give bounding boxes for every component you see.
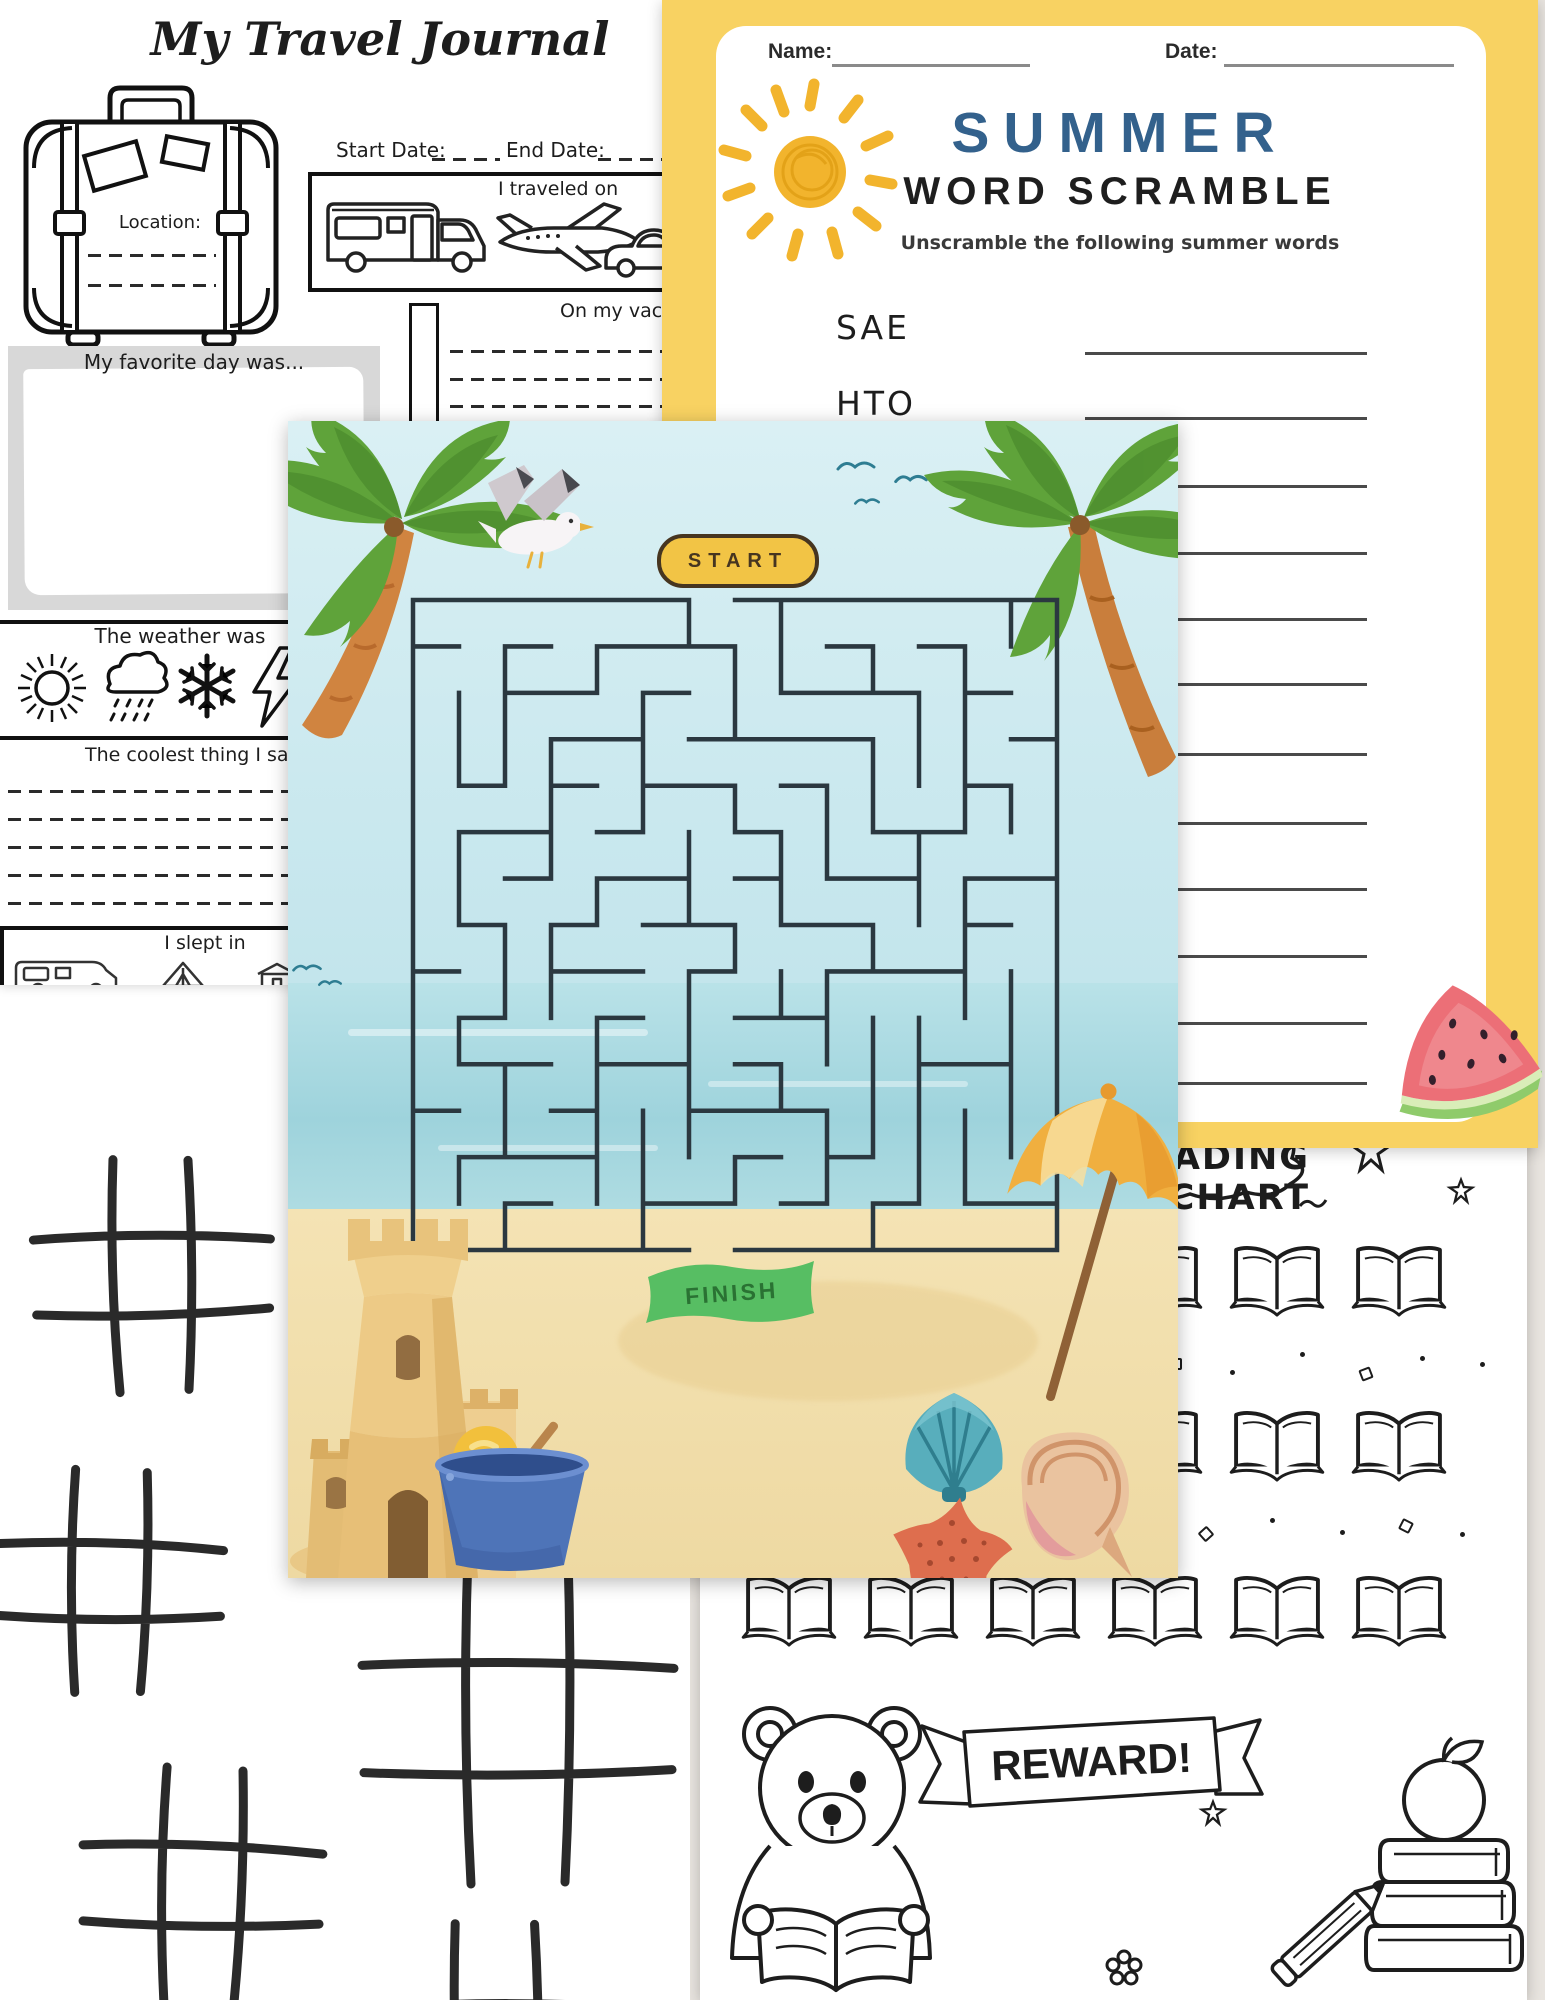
doodle-dot bbox=[1198, 1526, 1215, 1543]
beach-maze-page: START FINISH bbox=[288, 421, 1178, 1578]
doodle-dot bbox=[1340, 1530, 1345, 1535]
pencil-icon bbox=[1252, 1844, 1422, 2000]
rain-cloud-icon bbox=[94, 646, 168, 728]
maze[interactable] bbox=[413, 600, 1057, 1250]
watermelon-icon bbox=[1390, 980, 1545, 1130]
scramble-answer-line[interactable] bbox=[1085, 352, 1367, 355]
doodle-dot bbox=[1420, 1356, 1425, 1361]
journal-title: My Travel Journal bbox=[120, 12, 640, 66]
snowflake-icon bbox=[170, 648, 244, 724]
start-date-label: Start Date: bbox=[336, 138, 446, 162]
end-date-label: End Date: bbox=[506, 138, 605, 162]
location-label: Location: bbox=[100, 212, 220, 233]
tictactoe-grid[interactable] bbox=[0, 1472, 219, 1691]
vacation-line[interactable] bbox=[450, 405, 662, 408]
rv-camper-icon bbox=[322, 198, 494, 276]
vacation-line[interactable] bbox=[450, 350, 662, 353]
doodle-dot bbox=[1460, 1532, 1465, 1537]
doodle-dot bbox=[1398, 1518, 1414, 1534]
start-button[interactable]: START bbox=[657, 534, 819, 588]
sun-icon bbox=[14, 648, 90, 726]
vacation-label: On my vacation bbox=[560, 300, 662, 322]
favorite-day-label: My favorite day was... bbox=[8, 350, 380, 374]
bird-icon bbox=[836, 457, 876, 475]
start-date-line[interactable] bbox=[432, 158, 500, 161]
conch-shell bbox=[1006, 1421, 1136, 1578]
doodle-dot bbox=[1270, 1518, 1275, 1523]
doodle-dot bbox=[1358, 1366, 1374, 1382]
flower-doodle-icon bbox=[1104, 1948, 1144, 1988]
tent-icon bbox=[160, 960, 206, 985]
doodle-dot bbox=[1480, 1362, 1485, 1367]
star-doodle-icon bbox=[1200, 1800, 1226, 1826]
bird-icon bbox=[292, 961, 322, 975]
reward-label: REWARD! bbox=[990, 1734, 1193, 1790]
tictactoe-grid[interactable] bbox=[85, 1769, 319, 2000]
tictactoe-grid[interactable] bbox=[376, 1925, 618, 2000]
tictactoe-grid[interactable] bbox=[368, 1558, 668, 1880]
worksheet-collage: READING CHART bbox=[0, 0, 1545, 2000]
end-date-line[interactable] bbox=[598, 158, 662, 161]
car-icon bbox=[602, 222, 662, 276]
seagull-icon bbox=[466, 463, 616, 585]
camper-icon bbox=[12, 958, 124, 985]
starfish-icon bbox=[890, 1493, 1016, 1578]
vacation-line[interactable] bbox=[450, 378, 662, 381]
bird-icon bbox=[318, 977, 342, 989]
finish-banner: FINISH bbox=[640, 1255, 820, 1331]
location-line[interactable] bbox=[88, 284, 216, 287]
start-label: START bbox=[688, 550, 788, 573]
bird-icon bbox=[854, 495, 880, 508]
location-line[interactable] bbox=[88, 254, 216, 257]
beach-umbrella bbox=[1010, 1057, 1178, 1417]
teddy-bear-reading bbox=[706, 1686, 976, 2000]
scallop-shell bbox=[896, 1387, 1012, 1505]
traveled-on-label: I traveled on bbox=[498, 178, 618, 200]
vacation-strip bbox=[409, 303, 439, 436]
bucket-toy bbox=[428, 1433, 596, 1578]
scramble-answer-line[interactable] bbox=[1085, 417, 1367, 420]
tictactoe-grid[interactable] bbox=[38, 1161, 267, 1390]
doodle-dot bbox=[1230, 1370, 1235, 1375]
doodle-dot bbox=[1300, 1352, 1305, 1357]
